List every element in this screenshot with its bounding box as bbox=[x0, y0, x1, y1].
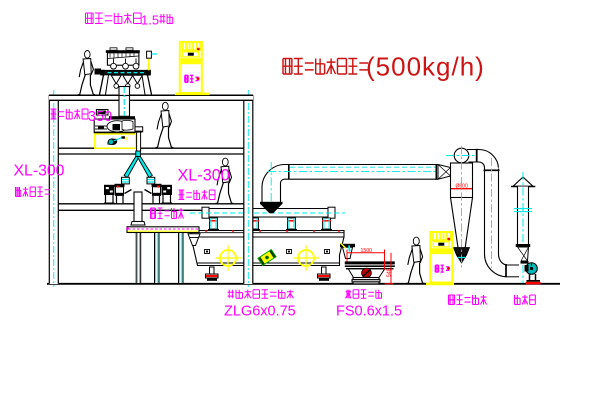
svg-text:ZLG6x0.75: ZLG6x0.75 bbox=[224, 304, 296, 320]
svg-text:XL-300: XL-300 bbox=[14, 163, 65, 180]
svg-text:FS0.6x1.5: FS0.6x1.5 bbox=[336, 304, 402, 320]
svg-text:1500: 1500 bbox=[361, 248, 373, 254]
svg-text:350: 350 bbox=[88, 109, 112, 125]
svg-text:548: 548 bbox=[387, 268, 393, 277]
svg-text:XL-300: XL-300 bbox=[178, 167, 230, 185]
svg-text:1.5: 1.5 bbox=[141, 13, 159, 28]
svg-text:(500kg/h): (500kg/h) bbox=[366, 52, 485, 82]
